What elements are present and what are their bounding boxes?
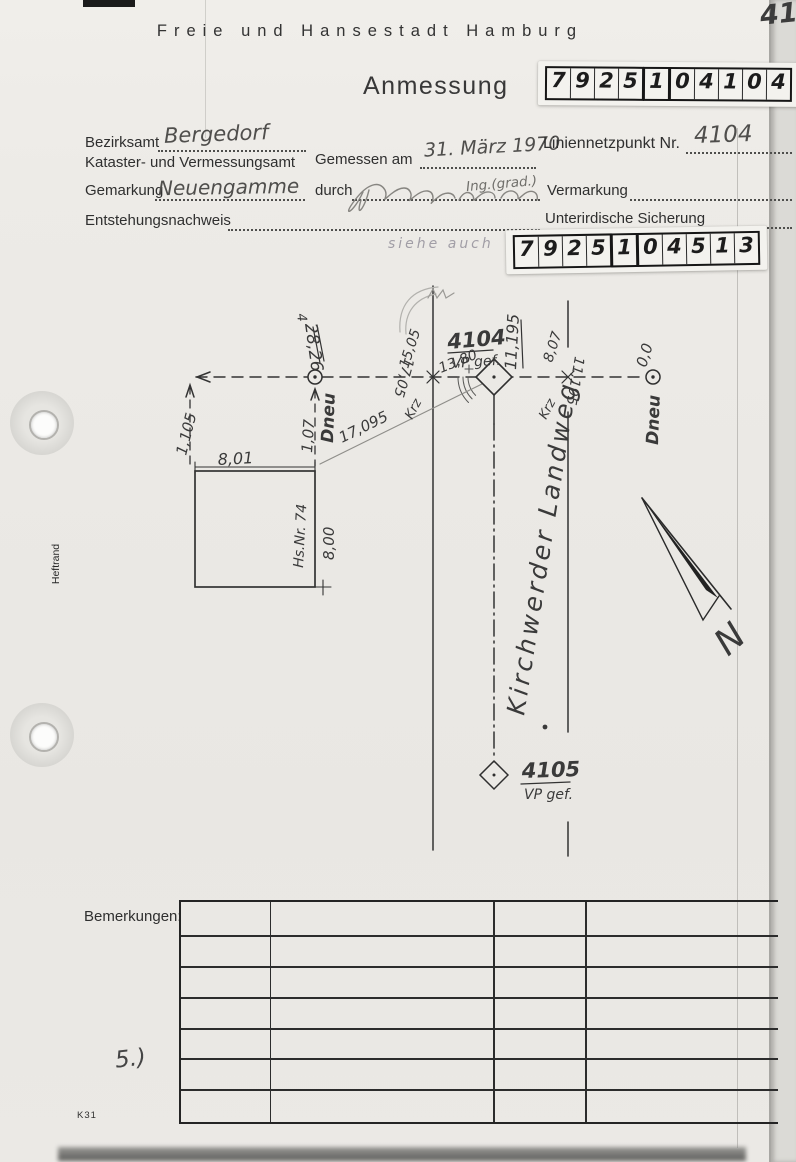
table-column-line: [585, 902, 587, 1122]
measure-00: 0,0: [633, 341, 657, 369]
measure-107: 1,07: [298, 418, 318, 453]
table-column-line: [493, 902, 495, 1122]
measure-2826: 28,26: [300, 322, 327, 373]
krz-left-label: Krz: [402, 396, 426, 422]
angle-arcs: [458, 377, 476, 403]
measure-11195-a: 11,195: [501, 313, 523, 370]
handwritten-item-number: 5.): [114, 1044, 147, 1073]
point-4105-type: VP gef.: [524, 787, 573, 803]
house-number: Hs.Nr. 74: [291, 504, 310, 569]
street-name: Kirchwerder Landweg: [501, 379, 583, 717]
bemerkungen-table: [179, 900, 778, 1124]
measure-17095: 17,095: [336, 407, 391, 446]
survey-sketch: N Kirchwerder Landweg 4104 VP gef. 4105 …: [0, 0, 796, 900]
point-4104-label: 4104: [445, 325, 506, 354]
measure-1105: 1,105: [172, 411, 200, 457]
dneu-left-label: Dneu: [318, 393, 340, 444]
form-code: K31: [77, 1110, 97, 1121]
stray-dot: [543, 725, 548, 730]
north-arrow: [642, 498, 731, 620]
point-4105-label: 4105: [520, 757, 580, 783]
house-corner-ticks: [315, 580, 331, 595]
measure-800: 8,00: [320, 527, 338, 560]
north-label: N: [707, 615, 754, 663]
bemerkungen-label: Bemerkungen:: [84, 908, 182, 925]
table-column-line: [270, 902, 271, 1122]
measure-2826-sup: 4: [293, 312, 309, 322]
dneu-right-label: Dneu: [643, 395, 665, 446]
measure-801: 8,01: [217, 448, 254, 469]
measure-807: 8,07: [541, 330, 566, 365]
scanned-survey-form: Heftrand 416 Freie und Hansestadt Hambur…: [0, 0, 796, 1162]
pencil-scribble: [428, 289, 454, 298]
scan-bottom-shadow: [58, 1147, 746, 1161]
